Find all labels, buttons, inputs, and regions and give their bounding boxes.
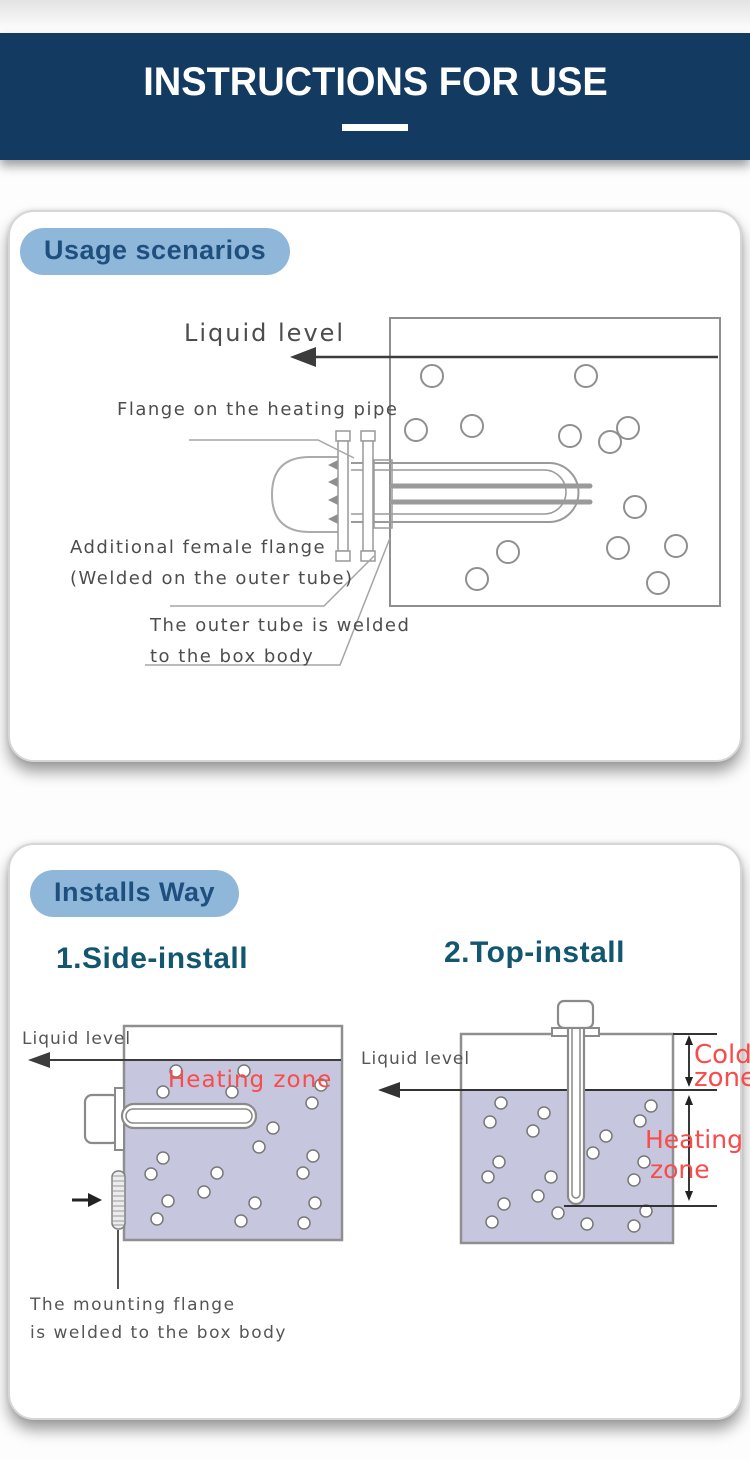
cold-zone-dimension-arrow <box>685 1035 693 1087</box>
top-shadow-fade <box>0 0 750 33</box>
left-arrow-icon <box>28 1052 50 1068</box>
liquid-level-label: Liquid level <box>184 319 345 347</box>
liquid-level-label: Liquid level <box>22 1029 131 1049</box>
right-arrow-icon <box>88 1193 102 1207</box>
title-band: INSTRUCTIONS FOR USE <box>0 33 750 160</box>
installs-way-diagrams: Liquid level Heating zone The <box>8 843 742 1416</box>
mounting-flange-caption-line1: The mounting flange <box>29 1295 236 1315</box>
title-underline-dash <box>342 124 408 131</box>
terminal-cover-dome <box>272 457 339 532</box>
mounting-flange-caption-line2: is welded to the box body <box>30 1323 287 1343</box>
female-flange-label-line1: Additional female flange <box>70 537 326 558</box>
heating-zone-label-line2: zone <box>650 1155 710 1184</box>
flange-leader-line <box>189 440 354 458</box>
cold-zone-label-line2: zone <box>694 1063 750 1093</box>
top-install-diagram: Liquid level Cold zone Heating zone <box>361 1001 750 1243</box>
page-title: INSTRUCTIONS FOR USE <box>143 62 607 102</box>
outer-tube-label-line1: The outer tube is welded <box>149 615 410 636</box>
outer-tube-label-line2: to the box body <box>150 646 314 667</box>
heating-tube-inner <box>572 1029 580 1198</box>
flange-plates <box>336 431 375 561</box>
female-flange-label-line2: (Welded on the outer tube) <box>70 568 354 589</box>
heating-zone-label: Heating zone <box>168 1067 332 1093</box>
heating-tube-outer <box>122 1104 256 1128</box>
flange-label: Flange on the heating pipe <box>117 399 398 420</box>
mounting-flange <box>112 1171 125 1229</box>
instructions-page: INSTRUCTIONS FOR USE Usage scenarios Liq… <box>0 0 750 1460</box>
left-arrow-icon <box>290 347 316 367</box>
usage-scenarios-diagram: Liquid level Flange <box>8 210 742 758</box>
side-install-diagram: Liquid level Heating zone The <box>22 1026 342 1343</box>
left-arrow-icon <box>378 1082 400 1098</box>
heating-zone-label-line1: Heating <box>645 1125 743 1154</box>
heater-terminal-cap <box>558 1001 593 1028</box>
heater-terminal-cap <box>85 1095 119 1143</box>
liquid-level-label: Liquid level <box>361 1049 470 1069</box>
